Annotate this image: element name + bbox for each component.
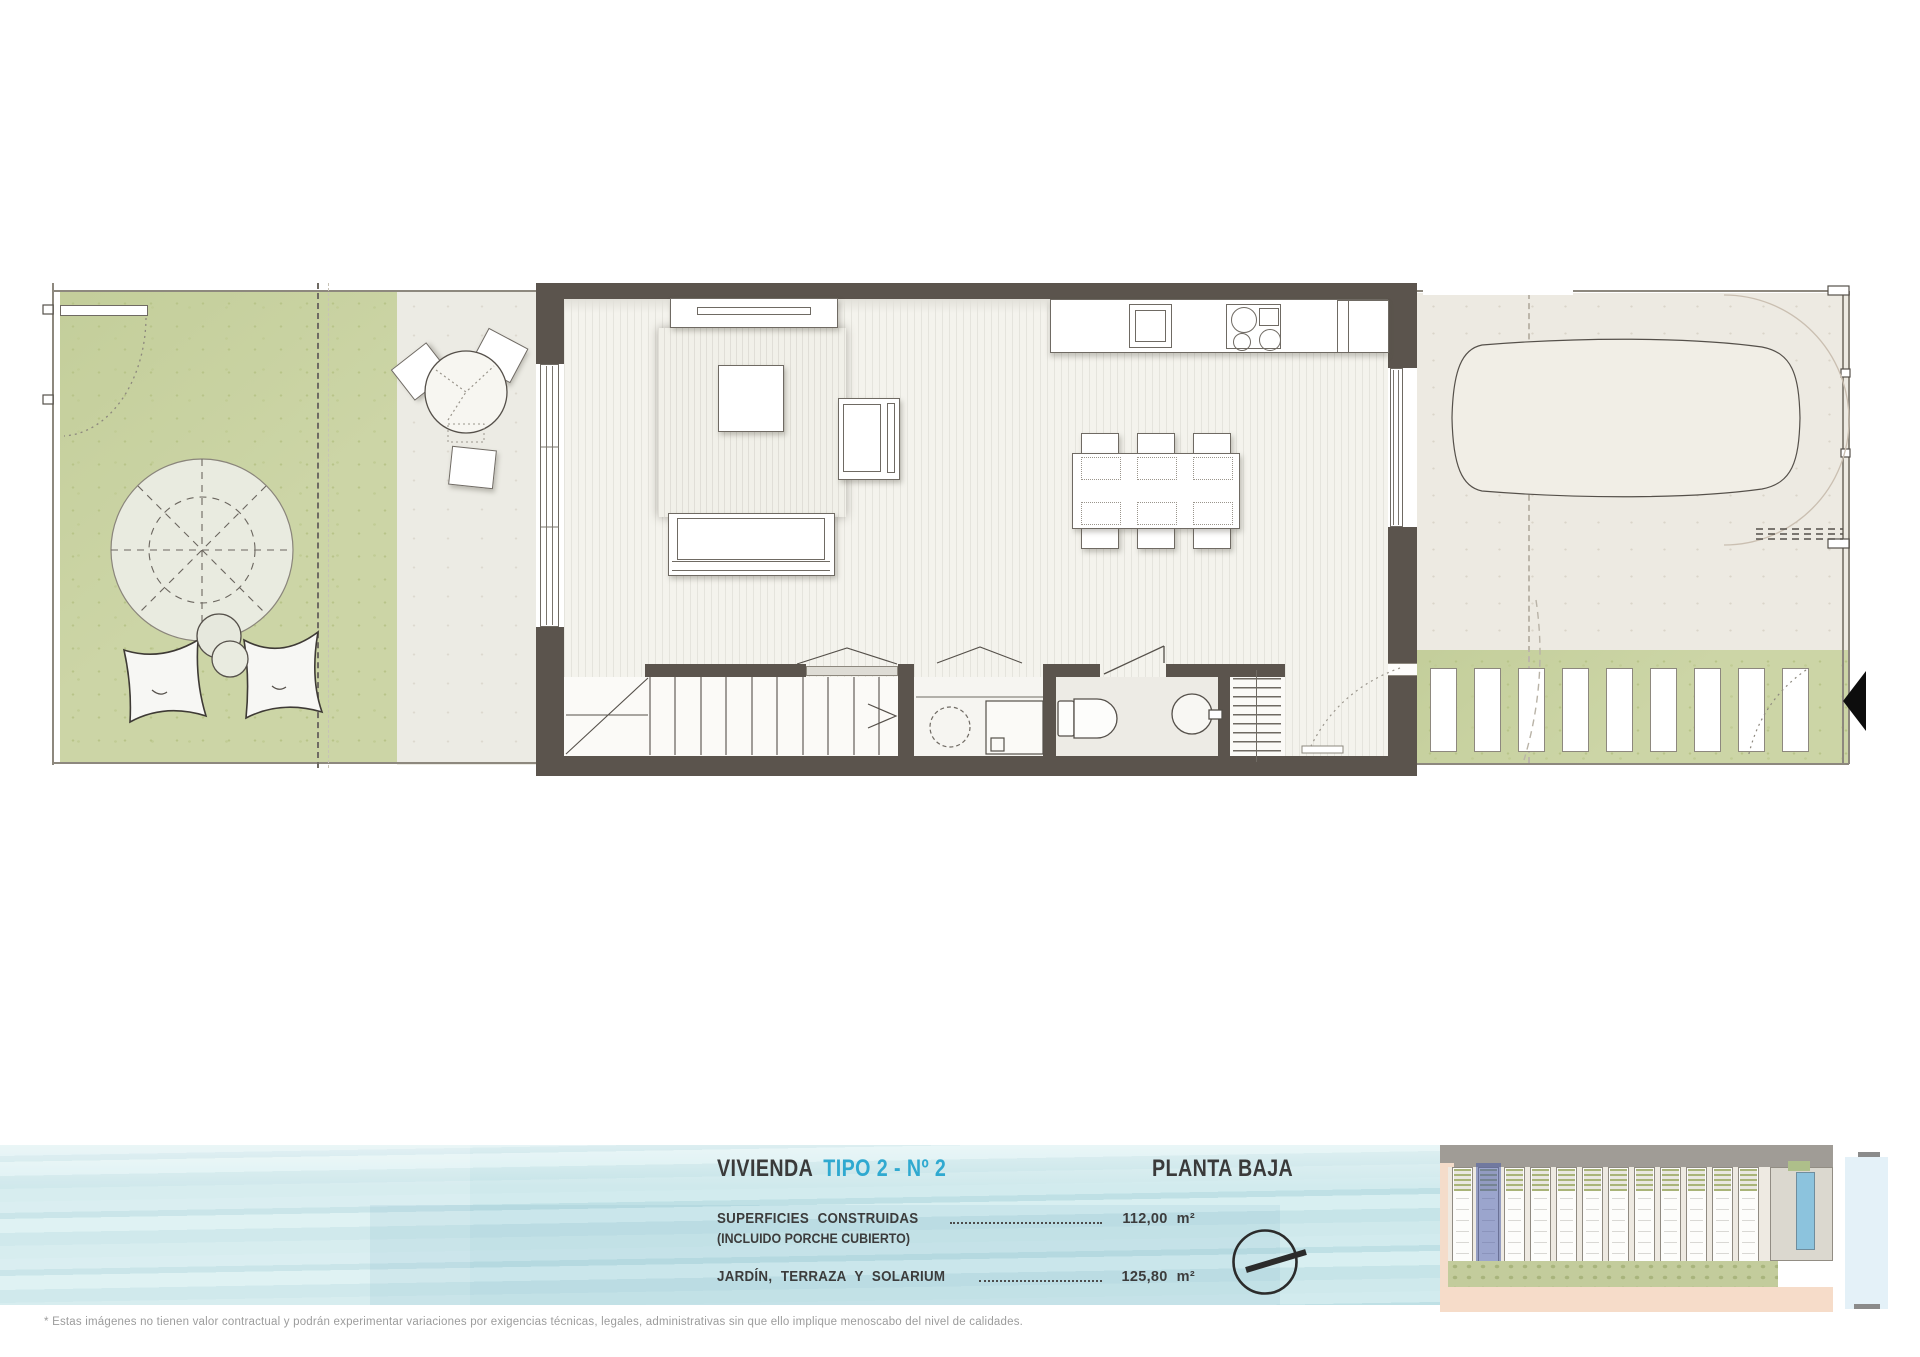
site-plan-unit [1738, 1167, 1759, 1263]
site-plan-unit [1608, 1167, 1629, 1263]
burner-right [1259, 329, 1281, 351]
coffee-table [718, 365, 784, 432]
boundary-top-right [1417, 290, 1849, 292]
wall-utility-bath [1043, 664, 1056, 756]
cooktop [1226, 304, 1281, 349]
boundary-right-inner [1842, 291, 1844, 764]
north-compass-icon [1225, 1222, 1315, 1312]
wall-bath-closet [1218, 664, 1230, 756]
wall-left-upper [536, 283, 564, 364]
site-plan-unit [1452, 1167, 1473, 1263]
deck-slab [1694, 668, 1721, 752]
site-gardens [1448, 1261, 1778, 1287]
sofa [668, 513, 835, 576]
surface-sublabel: (INCLUIDO PORCHE CUBIERTO) [717, 1231, 910, 1246]
site-beach [1440, 1287, 1833, 1312]
site-plan-unit [1660, 1167, 1681, 1263]
window-right [1390, 368, 1403, 527]
dining-table [1072, 453, 1240, 529]
site-plan-unit [1582, 1167, 1603, 1263]
sofa-seat [677, 518, 825, 560]
tv-sideboard [670, 298, 838, 328]
wall-stair-utility [898, 664, 914, 756]
deck-slab [1518, 668, 1545, 752]
fridge [1337, 300, 1389, 353]
wall-right-middle [1388, 527, 1417, 663]
garden-divider-dashed-light [328, 283, 329, 768]
deck-slab [1562, 668, 1589, 752]
wall-right-upper [1388, 283, 1417, 368]
plan-title: VIVIENDA TIPO 2 - Nº 2 [717, 1155, 946, 1183]
burner-small [1233, 333, 1251, 351]
bath-topwall-left [1043, 664, 1100, 677]
tv-screen [697, 307, 811, 315]
bath-topwall-right [1166, 664, 1218, 677]
surface-label: JARDÍN, TERRAZA Y SOLARIUM [717, 1269, 945, 1285]
site-plan-unit [1504, 1167, 1525, 1263]
burner-large [1231, 307, 1257, 333]
surface-value: 125,80 [1112, 1269, 1168, 1285]
stair-halfwall [645, 664, 806, 677]
site-plan-unit [1556, 1167, 1577, 1263]
oven-box [1259, 308, 1279, 326]
closet-shelf-rail [1256, 670, 1257, 762]
closet-topwall [1222, 664, 1285, 677]
title-prefix: VIVIENDA [717, 1155, 813, 1182]
deck-slab [1650, 668, 1677, 752]
wall-top [536, 283, 1417, 299]
site-plan-unit [1530, 1167, 1551, 1263]
armchair [838, 398, 900, 480]
kitchen-sink [1129, 304, 1172, 348]
boundary-top-left [52, 290, 536, 292]
kitchen-counter [1050, 299, 1388, 353]
title-type: TIPO 2 - Nº 2 [823, 1155, 946, 1182]
door-gap-right [1388, 663, 1417, 676]
site-plan-unit [1686, 1167, 1707, 1263]
site-sea [1845, 1157, 1888, 1309]
floor-plan [0, 0, 1920, 900]
site-pool [1796, 1172, 1815, 1250]
deck-slab [1782, 668, 1809, 752]
boundary-left [52, 283, 54, 765]
armchair-seat [843, 404, 881, 472]
bathroom-floor [1056, 677, 1218, 756]
surface-value: 112,00 [1112, 1211, 1168, 1227]
disclaimer-text: * Estas imágenes no tienen valor contrac… [44, 1316, 1023, 1328]
surface-unit: m² [1177, 1211, 1195, 1227]
boundary-right-outer [1848, 291, 1850, 764]
garden-divider-dashed [317, 283, 319, 768]
surface-label: SUPERFICIES CONSTRUIDAS [717, 1211, 918, 1227]
surface-unit: m² [1177, 1269, 1195, 1285]
wall-bottom [536, 756, 1417, 776]
garden-area [60, 292, 397, 762]
surface-row-built: SUPERFICIES CONSTRUIDAS 112,00 m² [717, 1211, 1195, 1227]
site-sea-mark-top [1858, 1152, 1880, 1157]
boundary-bottom-left [52, 762, 536, 764]
boundary-bottom-right [1417, 763, 1849, 765]
site-sea-mark-bottom [1854, 1304, 1880, 1309]
deck-slab [1738, 668, 1765, 752]
site-plan-unit [1712, 1167, 1733, 1263]
site-plan-unit [1634, 1167, 1655, 1263]
surface-row-garden: JARDÍN, TERRAZA Y SOLARIUM 125,80 m² [717, 1269, 1195, 1285]
wall-left-lower [536, 627, 564, 776]
wall-right-lower [1388, 676, 1417, 776]
sofa-back [672, 561, 830, 571]
deck-slab [1430, 668, 1457, 752]
terrace-chair [448, 446, 497, 489]
driveway-area [1417, 293, 1849, 652]
floor-label: PLANTA BAJA [1152, 1155, 1293, 1183]
page: VIVIENDA TIPO 2 - Nº 2 PLANTA BAJA SUPER… [0, 0, 1920, 1357]
stair-halfwall-light [806, 666, 898, 676]
armchair-back [887, 403, 895, 473]
site-pool-green [1788, 1161, 1810, 1171]
deck-slab [1606, 668, 1633, 752]
garden-gate [60, 305, 148, 316]
utility-floor [914, 677, 1043, 756]
deck-slab [1474, 668, 1501, 752]
site-plan-thumbnail [1440, 1145, 1888, 1312]
closet-shelves [1233, 678, 1281, 755]
stair-floor [564, 677, 898, 756]
dotted-leader [979, 1279, 1102, 1282]
dotted-leader [950, 1221, 1102, 1224]
window-left [540, 364, 559, 627]
